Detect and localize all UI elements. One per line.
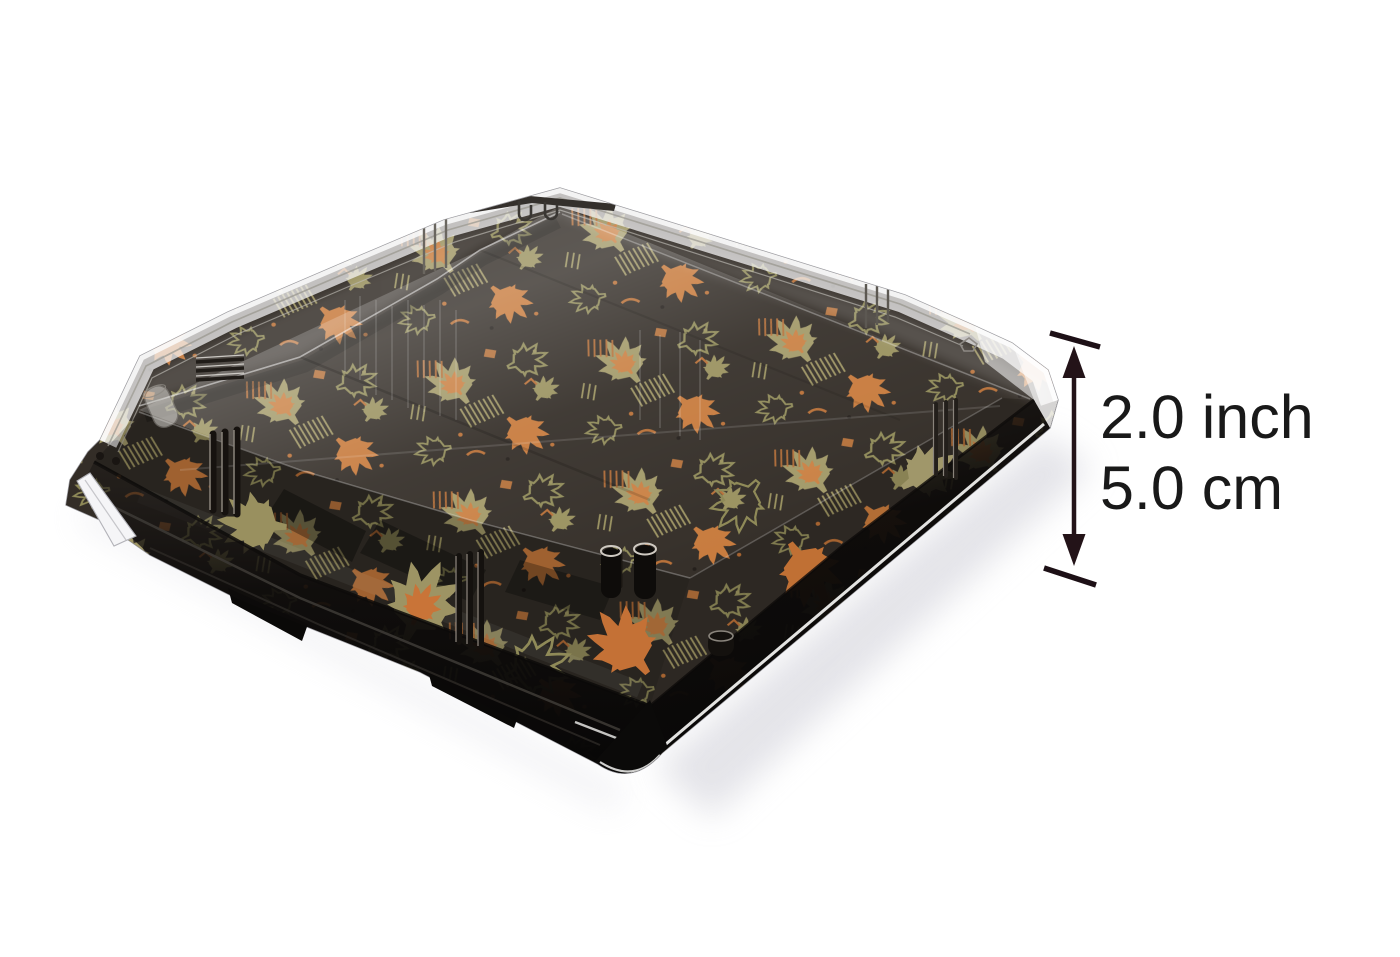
svg-text:2.0 inch: 2.0 inch (1100, 383, 1314, 451)
svg-text:5.0 cm: 5.0 cm (1100, 454, 1283, 522)
